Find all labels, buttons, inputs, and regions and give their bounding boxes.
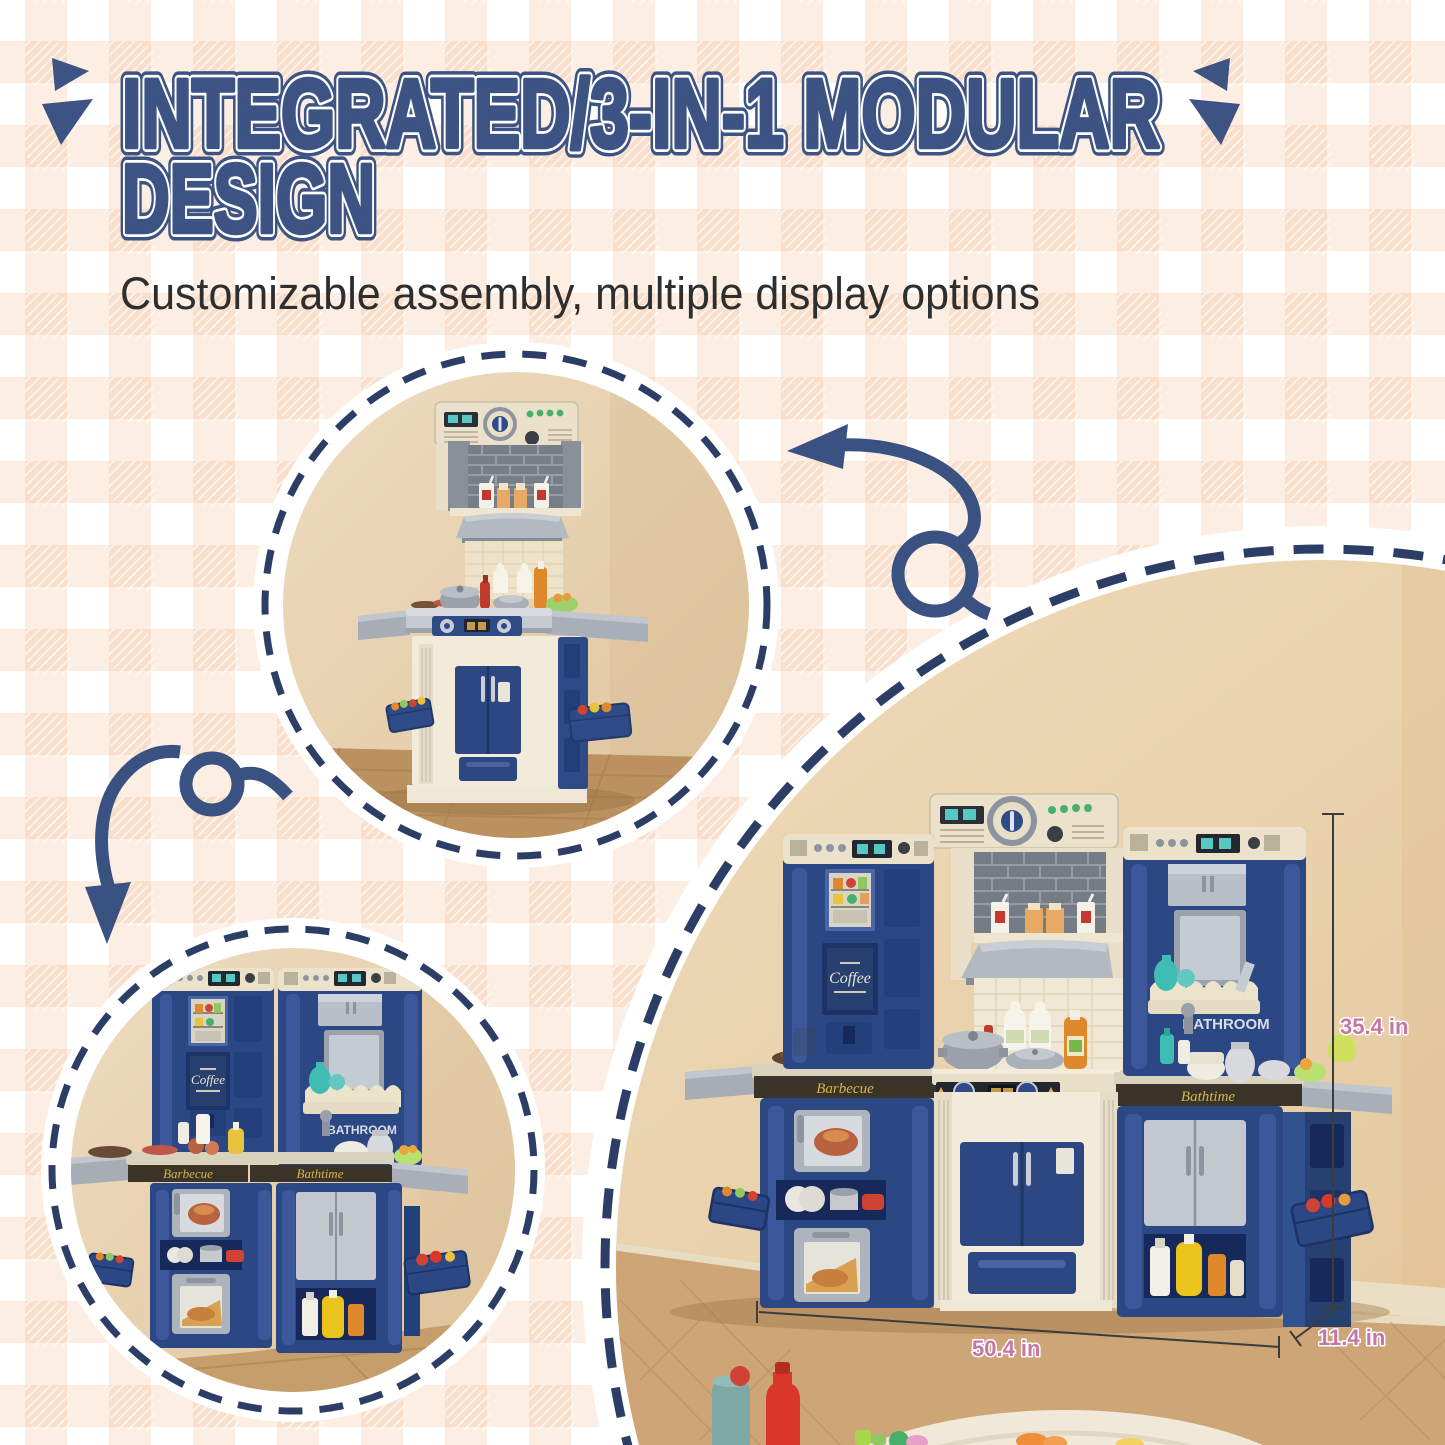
svg-text:Bathtime: Bathtime (1181, 1089, 1235, 1105)
svg-text:Coffee: Coffee (829, 970, 871, 987)
svg-text:Barbecue: Barbecue (163, 1166, 213, 1181)
svg-text:11.4 in: 11.4 in (1318, 1325, 1385, 1350)
svg-text:Barbecue: Barbecue (816, 1081, 874, 1097)
svg-text:Coffee: Coffee (191, 1072, 225, 1087)
svg-text:DESIGN: DESIGN (122, 144, 375, 253)
svg-text:50.4 in: 50.4 in (972, 1336, 1040, 1361)
svg-text:Customizable assembly, multipl: Customizable assembly, multiple display … (120, 268, 1040, 319)
svg-text:BATHROOM: BATHROOM (1182, 1016, 1269, 1033)
svg-text:Bathtime: Bathtime (297, 1166, 344, 1181)
svg-text:35.4 in: 35.4 in (1340, 1014, 1408, 1039)
